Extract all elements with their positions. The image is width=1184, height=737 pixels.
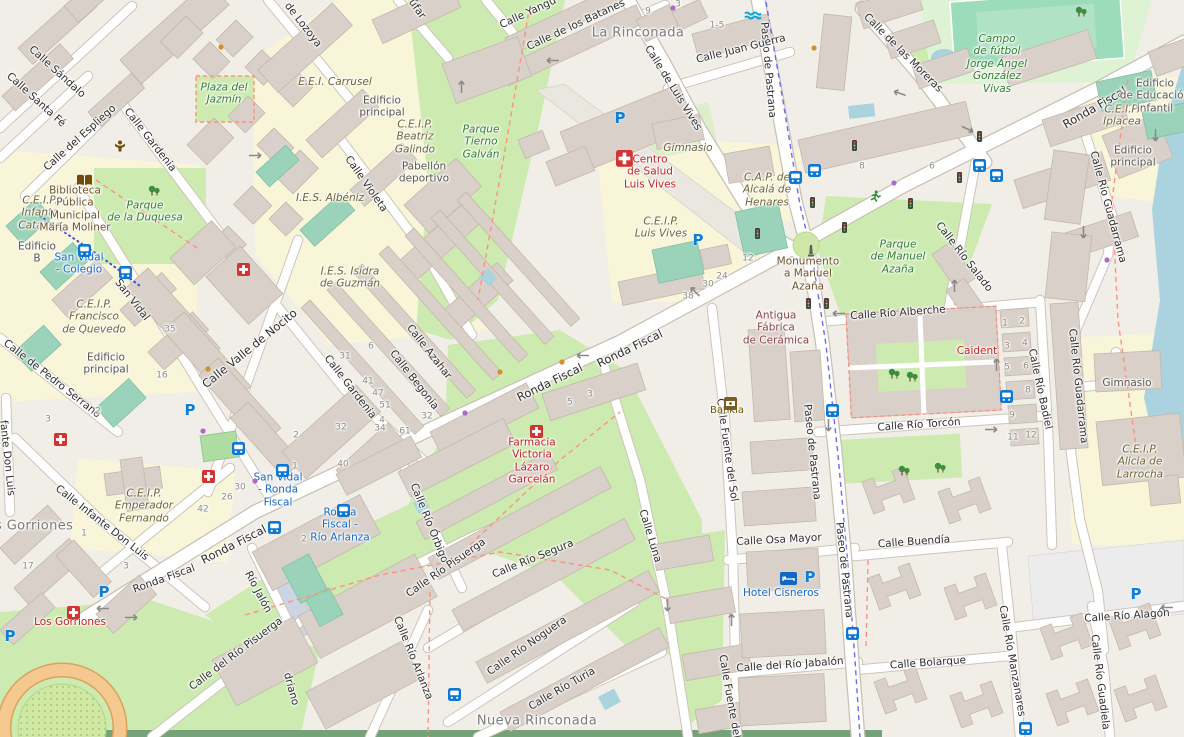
calle-violeta-label: Calle Violeta [342, 154, 390, 215]
1-label: 1 [1002, 319, 1008, 330]
paseo-de-pastrana-label: Paseo de Pastrana [833, 522, 855, 619]
calle-rio-turia-label: Calle Río Turia [527, 665, 598, 713]
8-label: 8 [1025, 386, 1031, 397]
labels-layer: Calle SándaloCalle Santa FéCalle del Esp… [0, 0, 1184, 737]
gimnasio-label: Gimnasio [1102, 377, 1151, 389]
calle-rio-salado-label: Calle Río Salado [933, 220, 995, 295]
2-label: 2 [293, 431, 299, 442]
calle-de-pedro-serrano-label: Calle de Pedro Serrano [1, 337, 103, 421]
ronda-fiscal-label: Ronda Fiscal [515, 361, 585, 404]
41-label: 41 [362, 377, 373, 388]
fante-don-luis-label: fante Don Luis [0, 420, 17, 497]
40-label: 40 [337, 460, 348, 471]
c-e-i-p-luis-vives-label: C.E.I.P.Luis Vives [635, 216, 687, 241]
antigua-fabrica-de-ceramica-label: AntiguaFábricade Cerámica [743, 309, 809, 346]
calle-rio-noguera-label: Calle Río Noguera [485, 614, 569, 678]
ronda-fiscal-label: Ronda Fiscal [595, 327, 665, 370]
11-label: 11 [1007, 433, 1018, 444]
30-label: 30 [234, 483, 245, 494]
5-label: 5 [567, 398, 573, 409]
paseo-de-pastrana-label: Paseo de Pastrana [801, 404, 823, 501]
12-label: 12 [742, 254, 753, 265]
17-label: 17 [22, 562, 33, 573]
calle-del-rio-jabalon-label: Calle del Río Jabalón [736, 655, 844, 675]
calle-rio-arlanza-label: Calle Río Arlanza [391, 615, 436, 702]
8-label: 8 [859, 162, 865, 173]
parque-de-manuel-azana-label: Parquede ManuelAzaña [871, 238, 926, 275]
calle-valle-de-nocito-label: Calle Valle de Nocito [200, 307, 300, 392]
calle-buendia-label: Calle Buendía [877, 533, 950, 550]
6-label: 6 [929, 162, 935, 173]
san-vidal-ronda-fiscal-label: San Vidal- RondaFiscal [254, 471, 303, 508]
edificio-b-label: EdificioB [18, 241, 56, 266]
ronda-fiscal-label: Ronda Fiscal [199, 523, 269, 567]
edificio-principal-label: Edificioprincipal [359, 95, 404, 120]
32-label: 32 [335, 423, 346, 434]
caident-label: Caident [957, 345, 998, 357]
calle-rio-alberche-label: Calle Río Alberche [850, 303, 946, 322]
calle-rio-alagon-label: Calle Río Alagón [1084, 607, 1170, 625]
12-label: 12 [1025, 431, 1036, 442]
51-label: 51 [379, 401, 390, 412]
calle-del-rio-pisuerga-label: Calle del Río Pisuerga [187, 615, 285, 693]
26-label: 26 [221, 493, 232, 504]
c-e-i-p-beatriz-galindo-label: C.E.I.P.BeatrizGalindo [395, 118, 435, 155]
c-a-p-de-alcala-de-henares-label: C.A.P. deAlcalá deHenares [743, 171, 791, 208]
47-label: 47 [372, 389, 383, 400]
edificio-principal-label: Edificioprincipal [1110, 145, 1155, 170]
9-label: 9 [645, 7, 651, 18]
c-e-i-p-alicia-de-larrocha-label: C.E.I.P.Alicia deLarrocha [1117, 443, 1163, 480]
3-label: 3 [587, 390, 593, 401]
biblioteca-publica-municipal-maria-moliner-label: BibliotecaPúblicaMunicipalMaría Moliner [39, 184, 110, 234]
1-label: 1 [81, 529, 87, 540]
1-5-label: 1-5 [710, 21, 725, 32]
edificio-de-educacion-infantil-label: Edificiode Educacióninfantil [1120, 77, 1184, 114]
3-label: 3 [123, 562, 129, 573]
2-label: 2 [95, 407, 101, 418]
35-label: 35 [164, 325, 175, 336]
calle-rio-guadiela-label: Calle Río Guadiela [1088, 634, 1112, 731]
9-label: 9 [1009, 411, 1015, 422]
parque-de-la-duquesa-label: Parquede la Duquesa [107, 200, 183, 225]
parque-tierno-galvan-label: ParqueTiernoGalván [463, 123, 500, 160]
5-label: 5 [1004, 363, 1010, 374]
rio-jalon-label: Río Jalón [242, 569, 274, 615]
calle-luna-label: Calle Luna [636, 508, 664, 564]
42-label: 42 [197, 505, 208, 516]
c-e-i-p-emperador-fernando-label: C.E.I.P.EmperadorFernando [115, 487, 173, 524]
nueva-rinconada-label: Nueva Rinconada [477, 713, 597, 728]
e-e-i-carrusel-label: E.E.I. Carrusel [298, 76, 372, 88]
4-label: 4 [379, 416, 385, 427]
ronda-fiscal-label: Ronda Fiscal [131, 562, 196, 596]
campo-de-futbol-jorge-angel-gonzalez-vivas-label: Campode fútbolJorge ÁngelGonzálezVivas [967, 33, 1027, 95]
calle-yangu-label: Calle Yangu [498, 0, 558, 31]
calle-de-las-moreras-label: Calle de las Moreras [861, 11, 945, 95]
31-label: 31 [339, 352, 350, 363]
4-label: 4 [1022, 339, 1028, 350]
calle-gardenia-label: Calle Gardenia [121, 106, 178, 174]
calle-rio-manzanares-label: Calle Río Manzanares [996, 604, 1028, 717]
farmacia-victoria-lazaro-garcelan-label: FarmaciaVictoriaLázaroGarcelán [508, 436, 555, 486]
24-label: 24 [716, 272, 727, 283]
6-label: 6 [1023, 362, 1029, 373]
calle-rio-pisuerga-label: Calle Río Pisuerga [404, 536, 488, 600]
c-e-i-p-francisco-de-quevedo-label: C.E.I.P.Franciscode Quevedo [62, 298, 126, 335]
os-gorriones-label: os Gorriones [0, 518, 73, 533]
la-rinconada-label: La Rinconada [592, 25, 685, 40]
3-label: 3 [45, 415, 51, 426]
calle-rio-segura-label: Calle Río Segura [491, 537, 576, 581]
2-label: 2 [301, 535, 307, 546]
plaza-del-jazmin-label: Plaza delJazmín [200, 82, 247, 107]
map-canvas[interactable]: Calle SándaloCalle Santa FéCalle del Esp… [0, 0, 1184, 737]
pabellon-deportivo-label: Pabellóndeportivo [399, 161, 449, 186]
calle-osa-mayor-label: Calle Osa Mayor [736, 532, 822, 549]
i-e-s-isidra-de-guzman-label: I.E.S. Isidrade Guzmán [320, 266, 380, 291]
monumento-a-manuel-azana-label: Monumentoa ManuelAzaña [777, 255, 840, 292]
ufar-label: úfar [406, 0, 428, 21]
32-label: 32 [421, 412, 432, 423]
i-e-s-albeniz-label: I.E.S. Albéniz [296, 192, 364, 204]
calle-bolarque-label: Calle Bolarque [890, 654, 967, 672]
edificio-principal-label: Edificioprincipal [83, 352, 128, 377]
61-label: 61 [399, 427, 410, 438]
3-label: 3 [1004, 342, 1010, 353]
gimnasio-label: Gimnasio [663, 142, 712, 154]
1-label: 1 [292, 462, 298, 473]
6-label: 6 [368, 342, 374, 353]
hotel-cisneros-label: Hotel Cisneros [743, 587, 819, 599]
16-label: 16 [156, 371, 167, 382]
calle-rio-guadarrama-label: Calle Río Guadarrama [1066, 328, 1090, 444]
driano-label: driano [281, 671, 302, 706]
30-label: 30 [702, 280, 713, 291]
2-label: 2 [1019, 317, 1025, 328]
calle-rio-torcon-label: Calle Río Torcón [877, 416, 961, 434]
calle-rio-orbigo-label: Calle Río Órbigo [407, 481, 450, 564]
de-lozoya-label: de Lozoya [282, 0, 324, 49]
